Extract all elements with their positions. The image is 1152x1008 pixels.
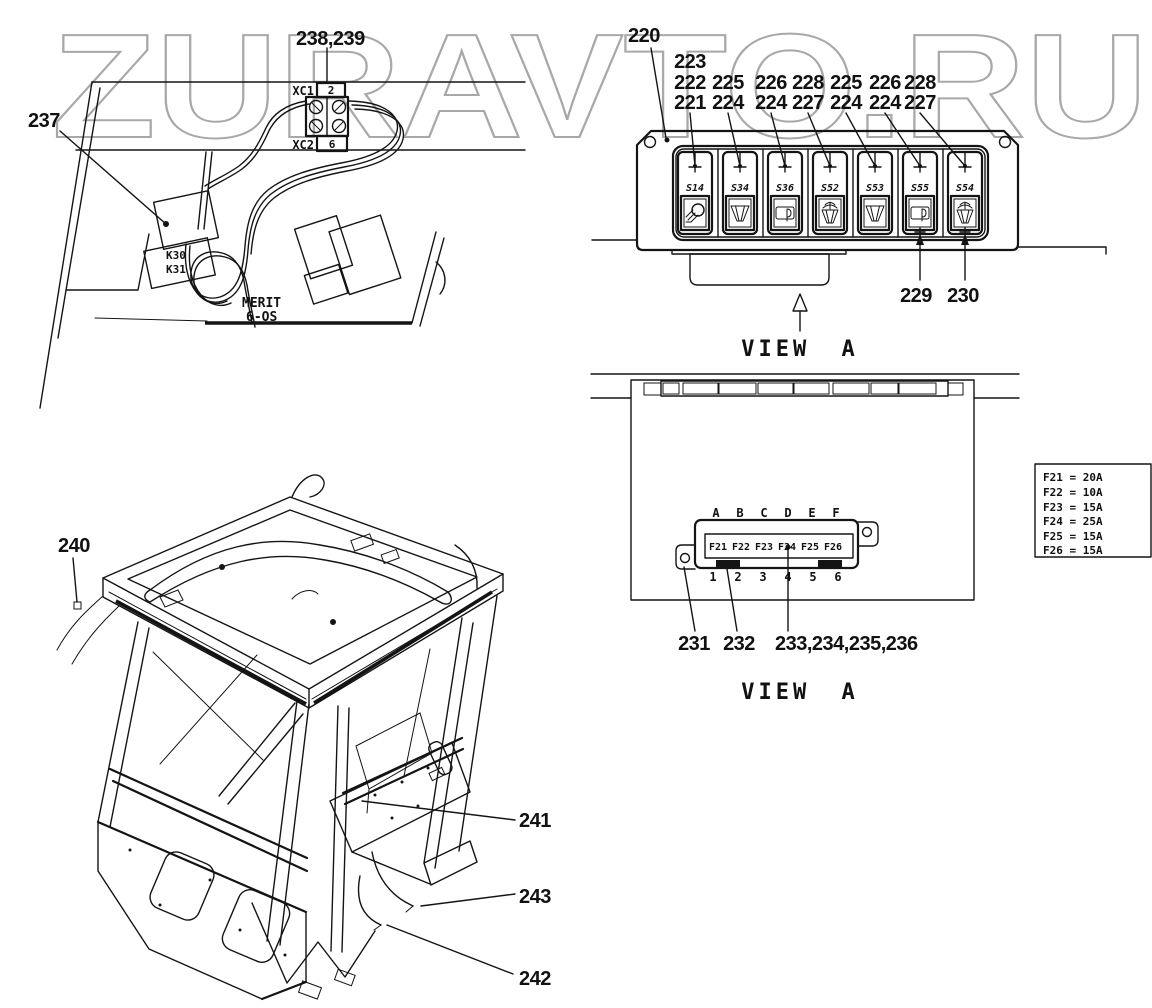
callout-230: 230 — [947, 285, 979, 307]
switch-id: S53 — [866, 183, 884, 194]
connector-xc2-pin: 6 — [329, 138, 336, 151]
parts-diagram-canvas: ZURAVTO.RU — [0, 0, 1152, 1008]
rocker-switches: S14 S34 S36 — [678, 152, 982, 236]
slot-number: 1 — [709, 570, 716, 584]
fuse-name: F25 — [801, 542, 819, 553]
fuse-name: F26 — [824, 542, 842, 553]
slot-letter: D — [784, 506, 791, 520]
rear-connector-strip — [644, 381, 963, 396]
callout-222: 222 — [674, 72, 706, 94]
wiper-washer-icon — [822, 202, 838, 223]
callout-232: 232 — [723, 633, 755, 655]
callout-224c: 224 — [830, 92, 863, 114]
callout-237: 237 — [28, 110, 60, 132]
slot-letter: C — [760, 506, 767, 520]
brand-merit: MERIT — [242, 296, 281, 311]
cab-frame-diagram: 240 241 243 242 — [57, 475, 551, 999]
wiper-washer-icon — [957, 202, 973, 223]
callout-225b: 225 — [830, 72, 862, 94]
fuse-table-row: F21 = 20A — [1043, 471, 1103, 484]
fuse-table-row: F23 = 15A — [1043, 501, 1103, 514]
slot-letter: E — [808, 506, 815, 520]
callout-231: 231 — [678, 633, 710, 655]
callout-233-236: 233,234,235,236 — [775, 633, 918, 655]
callout-228a: 228 — [792, 72, 824, 94]
switch-id: S55 — [911, 183, 929, 194]
work-light-icon — [686, 204, 704, 222]
callout-228b: 228 — [904, 72, 936, 94]
connector-xc2-label: XC2 — [292, 138, 314, 152]
side-opening — [146, 848, 217, 924]
switch-id: S14 — [686, 183, 704, 194]
relay-label-2: K31 — [166, 263, 186, 276]
callout-229: 229 — [900, 285, 932, 307]
connector-xc1-label: XC1 — [292, 84, 314, 98]
switch-id: S52 — [821, 183, 839, 194]
fuse-table-row: F25 = 15A — [1043, 530, 1103, 543]
slot-letter: F — [832, 506, 839, 520]
holder-hole-right — [863, 528, 872, 537]
view-a-label-top: VIEW A — [741, 337, 858, 362]
callout-223: 223 — [674, 51, 706, 73]
callout-221: 221 — [674, 92, 706, 114]
panel-rear-connector — [690, 254, 829, 285]
brand-model: 6-OS — [246, 310, 277, 325]
switch-id: S54 — [956, 183, 974, 194]
callout-243: 243 — [519, 886, 551, 908]
callout-226a: 226 — [755, 72, 787, 94]
fuse-table-row: F26 = 15A — [1043, 544, 1103, 557]
fuse-name: F22 — [732, 542, 750, 553]
wiper-icon — [731, 206, 749, 221]
callout-242: 242 — [519, 968, 551, 990]
callout-227a: 227 — [792, 92, 824, 114]
callout-226b: 226 — [869, 72, 901, 94]
slot-letter: A — [712, 506, 720, 520]
watermark-text: ZURAVTO.RU — [52, 4, 1148, 169]
cab-pillars — [98, 596, 497, 952]
switch-id: S36 — [776, 183, 794, 194]
fuse-rating-table: F21 = 20A F22 = 10A F23 = 15A F24 = 25A … — [1035, 464, 1151, 557]
cab-roof — [57, 475, 503, 708]
slot-letter: B — [736, 506, 743, 520]
fuse-name: F21 — [709, 542, 727, 553]
callout-224d: 224 — [869, 92, 902, 114]
harness-leads — [359, 852, 413, 930]
fuse-panel-view: A B C D E F F21 F22 F23 F24 F25 F26 1 2 … — [591, 374, 1151, 705]
washer-icon — [776, 207, 794, 221]
holder-hole-left — [681, 554, 690, 563]
fuse-name: F23 — [755, 542, 773, 553]
fuse-table-row: F22 = 10A — [1043, 486, 1103, 499]
callout-224a: 224 — [712, 92, 745, 114]
fuse-holder: A B C D E F F21 F22 F23 F24 F25 F26 1 2 … — [676, 506, 878, 584]
callout-225a: 225 — [712, 72, 744, 94]
view-a-label-bottom: VIEW A — [741, 680, 858, 705]
parts-catalog-page: ZURAVTO.RU — [0, 0, 1152, 1008]
slot-number: 5 — [809, 570, 816, 584]
slot-number: 6 — [834, 570, 841, 584]
callout-241: 241 — [519, 810, 551, 832]
view-a-marker-top: VIEW A — [741, 294, 858, 362]
console-connector — [290, 203, 401, 306]
slot-number: 2 — [734, 570, 741, 584]
callout-227b: 227 — [904, 92, 936, 114]
slot-number: 3 — [759, 570, 766, 584]
wiper-icon — [866, 206, 884, 221]
bottom-callouts: 229 230 — [900, 234, 979, 307]
relay-box: K30 K31 — [144, 191, 219, 289]
switch-id: S34 — [731, 183, 749, 194]
callout-224b: 224 — [755, 92, 788, 114]
connector-xc1-pin: 2 — [328, 84, 335, 97]
fuse-table-row: F24 = 25A — [1043, 515, 1103, 528]
callout-240: 240 — [58, 535, 90, 557]
relay-label-1: K30 — [166, 249, 186, 262]
callout-238-239: 238,239 — [296, 28, 365, 50]
callout-220: 220 — [628, 25, 660, 47]
washer-icon — [911, 207, 929, 221]
